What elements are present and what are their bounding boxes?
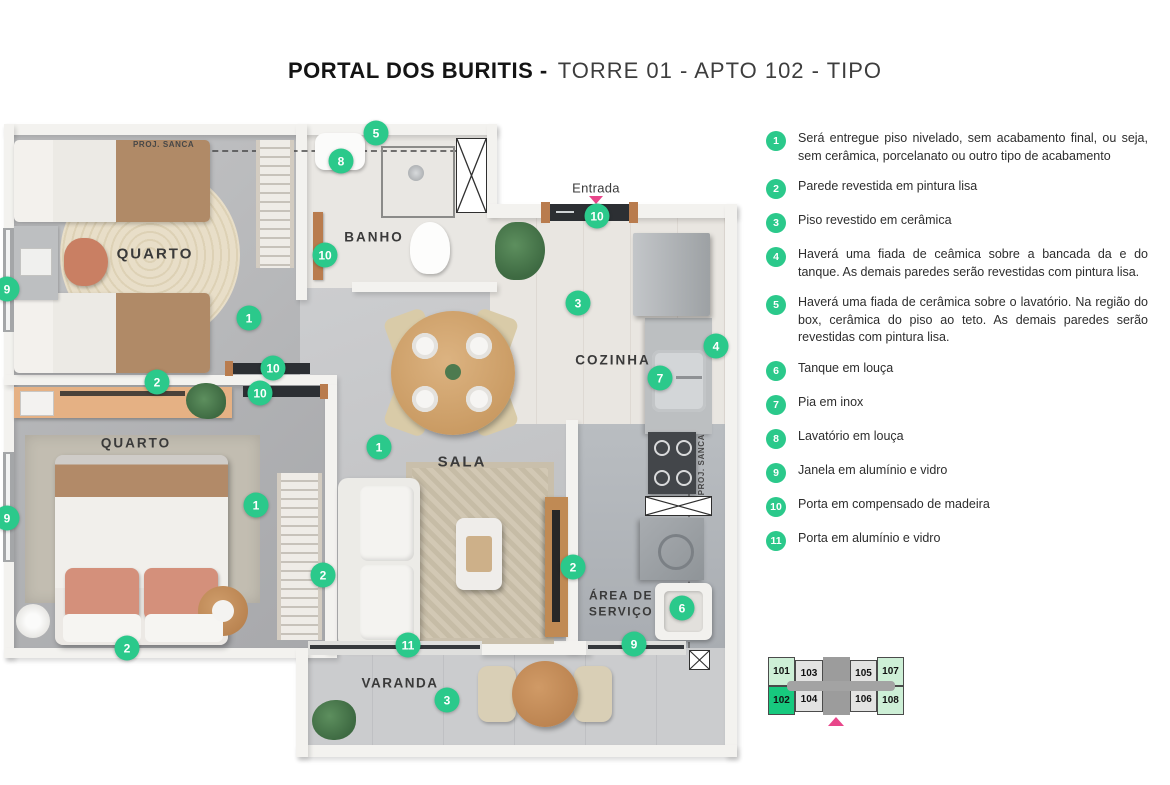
bedroom2-side-table-deco: [212, 600, 234, 622]
legend-number-badge: 9: [766, 463, 786, 483]
keyplan-entrance-arrow-icon: [828, 717, 844, 726]
apartment-floorplan-page: PORTAL DOS BURITIS -TORRE 01 - APTO 102 …: [0, 0, 1170, 785]
label-proj-sanca-top: PROJ. SANCA: [133, 140, 194, 149]
bedroom1-laptop: [20, 248, 52, 276]
tv-screen: [552, 510, 560, 622]
bedroom2-pillow-white: [145, 614, 223, 642]
legend-item-text: Porta em alumínio e vidro: [798, 530, 940, 548]
bedroom2-floor-deco: [16, 604, 50, 638]
service-window: [586, 641, 686, 655]
legend-item-text: Será entregue piso nivelado, sem acabame…: [798, 130, 1148, 165]
legend-item-text: Haverá uma fiada de ceâmica sobre a banc…: [798, 246, 1148, 281]
dining-centerpiece: [445, 364, 461, 380]
wall-entry-right: [633, 204, 737, 218]
stove-burner: [654, 470, 670, 486]
bedroom2-closet: [277, 473, 322, 640]
dining-plate: [466, 333, 492, 359]
legend-item-text: Parede revestida em pintura lisa: [798, 178, 977, 196]
entrada-arrow-icon: [589, 196, 603, 204]
dining-plate: [466, 386, 492, 412]
bedroom1-door-post: [225, 361, 233, 376]
balcony-table: [512, 661, 578, 727]
legend-number-badge: 10: [766, 497, 786, 517]
bedroom1-door: [232, 363, 310, 374]
building-key-plan: 101103105107102104106108: [757, 652, 917, 732]
legend-item-4: 4 Haverá uma fiada de ceâmica sobre a ba…: [766, 246, 1148, 281]
balcony-sliding-door: [308, 641, 482, 655]
legend-item-text: Lavatório em louça: [798, 428, 904, 446]
toilet: [410, 222, 450, 274]
legend-item-9: 9 Janela em alumínio e vidro: [766, 462, 1148, 483]
dining-plate: [412, 386, 438, 412]
washing-machine-door: [658, 534, 694, 570]
legend-number-badge: 5: [766, 295, 786, 315]
wall-between-bedrooms: [4, 375, 337, 385]
legend-number-badge: 3: [766, 213, 786, 233]
bedroom2-desk-laptop: [20, 391, 54, 416]
legend-item-6: 6 Tanque em louça: [766, 360, 1148, 381]
label-quarto2: QUARTO: [101, 436, 171, 451]
bedroom2-pillow-salmon: [65, 568, 139, 620]
wall-right: [725, 204, 737, 757]
legend-item-3: 3 Piso revestido em cerâmica: [766, 212, 1148, 233]
service-shaft-duct: [645, 496, 712, 516]
wall-bathroom-bottom: [352, 282, 497, 292]
legend: 1 Será entregue piso nivelado, sem acaba…: [766, 130, 1148, 551]
label-cozinha: COZINHA: [575, 353, 651, 368]
sofa-cushion: [360, 486, 414, 561]
label-varanda: VARANDA: [362, 676, 439, 691]
wall-bedroom2-right: [325, 385, 337, 652]
bedroom2-desk-plant: [186, 383, 226, 419]
sofa-cushion: [360, 565, 414, 640]
wall-balcony-top-piece: [480, 641, 590, 655]
kitchen-sink: [652, 350, 706, 412]
bedroom1-closet: [256, 140, 294, 268]
legend-item-text: Pia em inox: [798, 394, 863, 412]
wall-top: [4, 124, 497, 135]
legend-item-11: 11 Porta em alumínio e vidro: [766, 530, 1148, 551]
bedroom2-desk-shelf: [60, 391, 185, 396]
wall-shaft-right: [487, 124, 497, 214]
label-sala: SALA: [438, 454, 487, 471]
balcony-drain: [689, 650, 710, 670]
fridge: [633, 233, 710, 316]
legend-number-badge: 6: [766, 361, 786, 381]
legend-item-7: 7 Pia em inox: [766, 394, 1148, 415]
label-banho: BANHO: [344, 230, 404, 245]
laundry-sink-basin: [664, 591, 703, 632]
legend-item-text: Tanque em louça: [798, 360, 893, 378]
bedroom2-door-post: [320, 384, 328, 399]
balcony-plant: [312, 700, 356, 740]
shower-head: [408, 165, 424, 181]
label-entrada: Entrada: [572, 181, 620, 196]
label-quarto1: QUARTO: [117, 246, 194, 263]
bedroom2-pillow-white: [63, 614, 141, 642]
entry-door-post-left: [541, 202, 550, 223]
stove-burner: [676, 440, 692, 456]
wall-bedroom2-bottom: [4, 648, 337, 658]
legend-item-text: Haverá uma fiada de cerâmica sobre o lav…: [798, 294, 1148, 347]
balcony-chair: [478, 666, 516, 722]
legend-number-badge: 8: [766, 429, 786, 449]
bathroom-sink: [315, 133, 365, 170]
legend-item-5: 5 Haverá uma fiada de cerâmica sobre o l…: [766, 294, 1148, 347]
legend-number-badge: 4: [766, 247, 786, 267]
kitchen-faucet: [676, 376, 702, 379]
bedroom2-window: [3, 452, 14, 562]
legend-item-text: Janela em alumínio e vidro: [798, 462, 947, 480]
bathroom-door-leaf: [313, 212, 323, 280]
bedroom1-bed-bottom: [14, 293, 210, 373]
label-proj-sanca-right: PROJ. SANCA: [697, 434, 706, 495]
wall-balcony-bottom: [296, 745, 737, 757]
dining-plate: [412, 333, 438, 359]
page-title: PORTAL DOS BURITIS -TORRE 01 - APTO 102 …: [0, 58, 1170, 84]
legend-number-badge: 2: [766, 179, 786, 199]
legend-item-2: 2 Parede revestida em pintura lisa: [766, 178, 1148, 199]
stove-burner: [676, 470, 692, 486]
legend-number-badge: 11: [766, 531, 786, 551]
entry-door-handle: [556, 211, 574, 213]
balcony-chair: [574, 666, 612, 722]
bedroom1-window: [3, 228, 14, 332]
project-name: PORTAL DOS BURITIS -: [288, 58, 548, 83]
legend-number-badge: 7: [766, 395, 786, 415]
bedroom2-door: [243, 386, 321, 397]
keyplan-corridor: [787, 681, 895, 691]
legend-item-text: Piso revestido em cerâmica: [798, 212, 952, 230]
shaft-duct: [456, 138, 487, 213]
bedroom1-bed-top: [14, 140, 210, 222]
shower-box: [381, 146, 455, 218]
wall-entry-left: [487, 204, 545, 218]
wall-balcony-left: [296, 648, 308, 757]
unit-subtitle: TORRE 01 - APTO 102 - TIPO: [558, 58, 882, 83]
legend-item-text: Porta em compensado de madeira: [798, 496, 990, 514]
entry-door-post-right: [629, 202, 638, 223]
coffee-table-tray: [466, 536, 492, 572]
legend-item-1: 1 Será entregue piso nivelado, sem acaba…: [766, 130, 1148, 165]
legend-item-8: 8 Lavatório em louça: [766, 428, 1148, 449]
legend-item-10: 10 Porta em compensado de madeira: [766, 496, 1148, 517]
legend-number-badge: 1: [766, 131, 786, 151]
label-area-servico: ÁREA DE SERVIÇO: [573, 588, 669, 619]
bedroom1-chair: [64, 238, 108, 286]
stove-burner: [654, 440, 670, 456]
wall-left: [4, 124, 14, 658]
